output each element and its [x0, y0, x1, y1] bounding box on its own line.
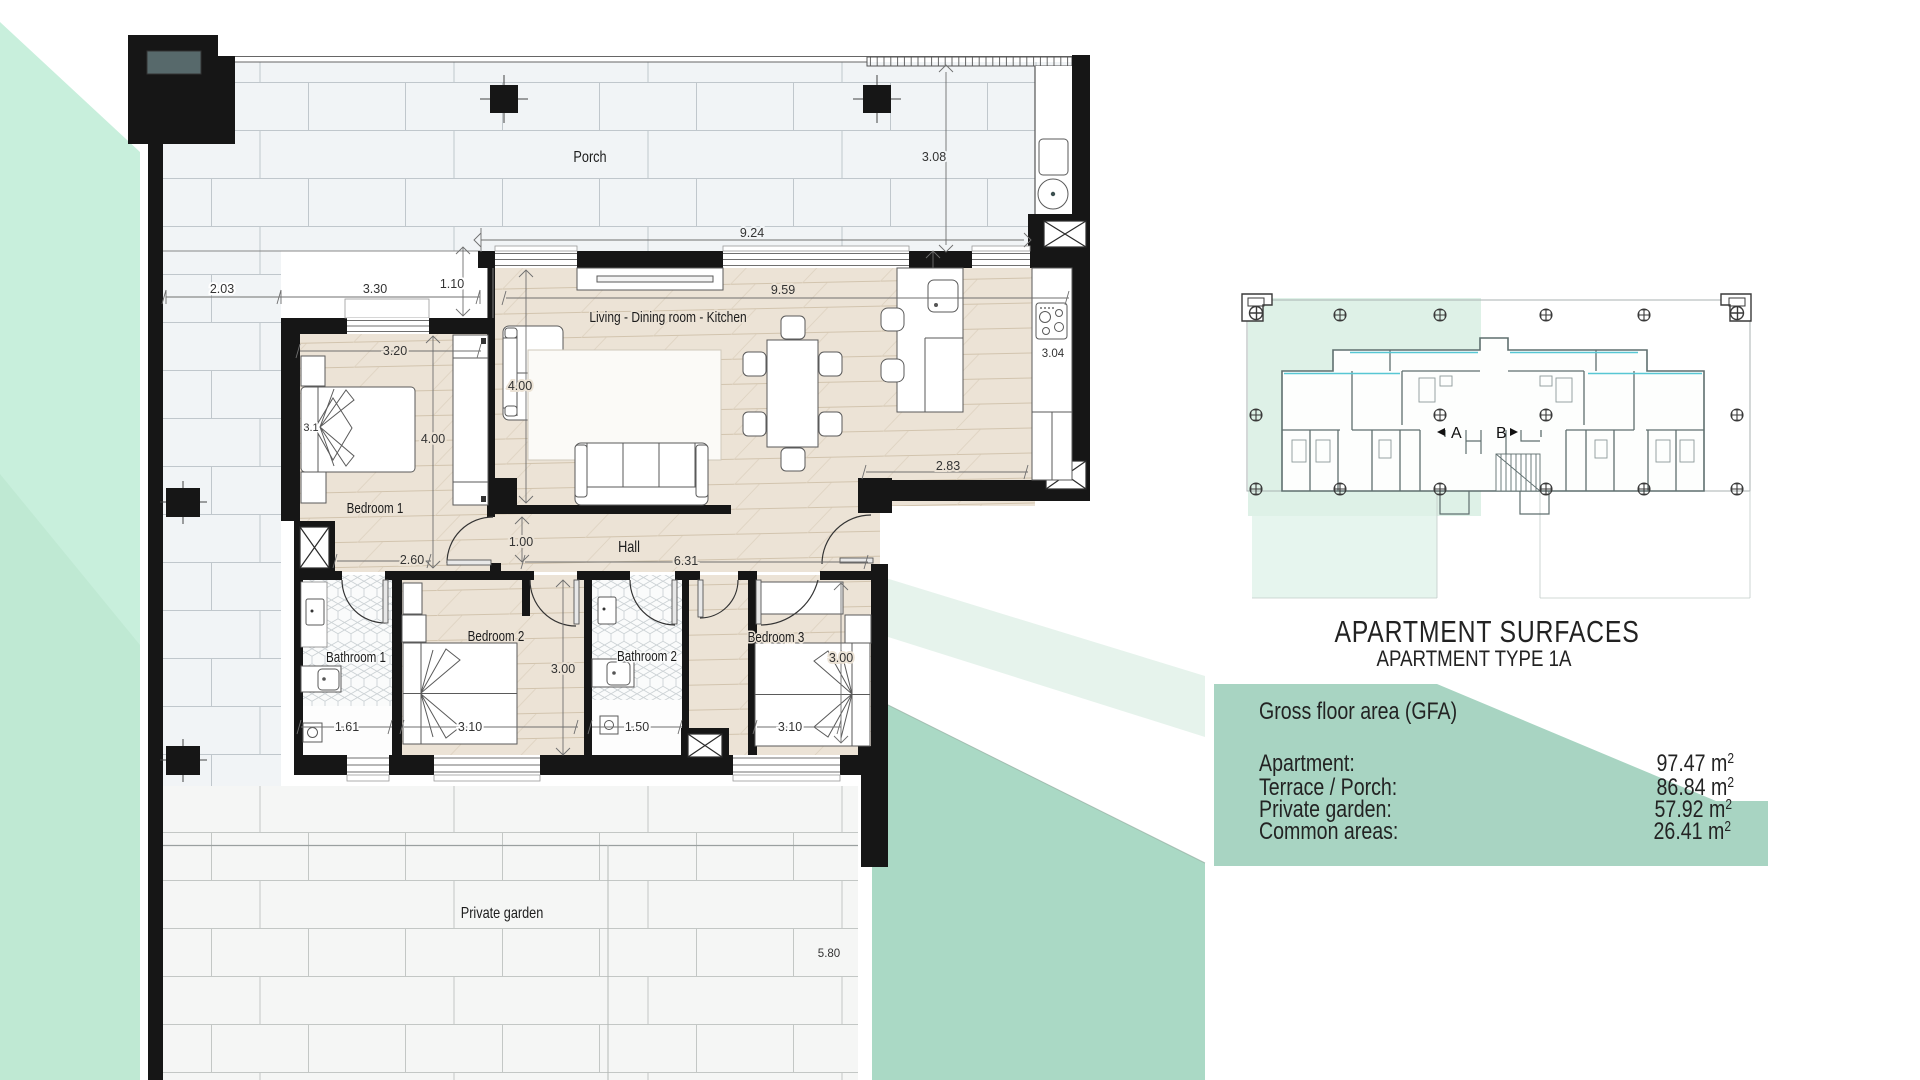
svg-text:A: A: [1451, 425, 1462, 442]
svg-text:1.10: 1.10: [440, 277, 464, 291]
svg-text:1.00: 1.00: [509, 535, 533, 549]
svg-text:Bedroom 1: Bedroom 1: [347, 500, 404, 517]
svg-text:4.00: 4.00: [421, 432, 445, 446]
svg-text:3.30: 3.30: [363, 282, 387, 296]
svg-text:2.83: 2.83: [936, 459, 960, 473]
svg-text:Common areas:: Common areas:: [1259, 817, 1398, 845]
svg-text:3.10: 3.10: [458, 720, 482, 734]
svg-text:9.24: 9.24: [740, 226, 764, 240]
svg-text:3.08: 3.08: [922, 150, 946, 164]
svg-text:2.60: 2.60: [400, 553, 424, 567]
svg-text:Hall: Hall: [618, 539, 640, 556]
svg-text:3.00: 3.00: [551, 662, 575, 676]
svg-text:9.59: 9.59: [771, 283, 795, 297]
svg-text:4.00: 4.00: [508, 379, 532, 393]
svg-text:Private garden: Private garden: [461, 905, 544, 922]
svg-text:Bedroom 3: Bedroom 3: [748, 629, 805, 646]
svg-text:3.04: 3.04: [1042, 348, 1065, 360]
svg-text:APARTMENT SURFACES: APARTMENT SURFACES: [1334, 614, 1639, 648]
svg-text:3.20: 3.20: [383, 344, 407, 358]
svg-text:1.50: 1.50: [625, 720, 649, 734]
svg-text:1.61: 1.61: [335, 720, 359, 734]
svg-text:26.41 m2: 26.41 m2: [1654, 817, 1731, 845]
svg-text:APARTMENT TYPE 1A: APARTMENT TYPE 1A: [1377, 648, 1572, 672]
svg-text:3.00: 3.00: [829, 651, 853, 665]
svg-text:Bathroom 1: Bathroom 1: [326, 649, 386, 666]
svg-text:Living - Dining room - Kitchen: Living - Dining room - Kitchen: [589, 309, 746, 326]
svg-text:3.1: 3.1: [303, 422, 318, 434]
svg-text:Porch: Porch: [573, 149, 606, 166]
svg-text:Bathroom 2: Bathroom 2: [617, 648, 677, 665]
svg-text:Gross floor area (GFA): Gross floor area (GFA): [1259, 697, 1457, 725]
svg-text:6.31: 6.31: [674, 554, 698, 568]
svg-text:3.10: 3.10: [778, 720, 802, 734]
svg-text:B: B: [1496, 425, 1507, 442]
svg-text:Bedroom 2: Bedroom 2: [468, 628, 525, 645]
svg-text:2.03: 2.03: [210, 282, 234, 296]
svg-text:5.80: 5.80: [818, 948, 840, 960]
